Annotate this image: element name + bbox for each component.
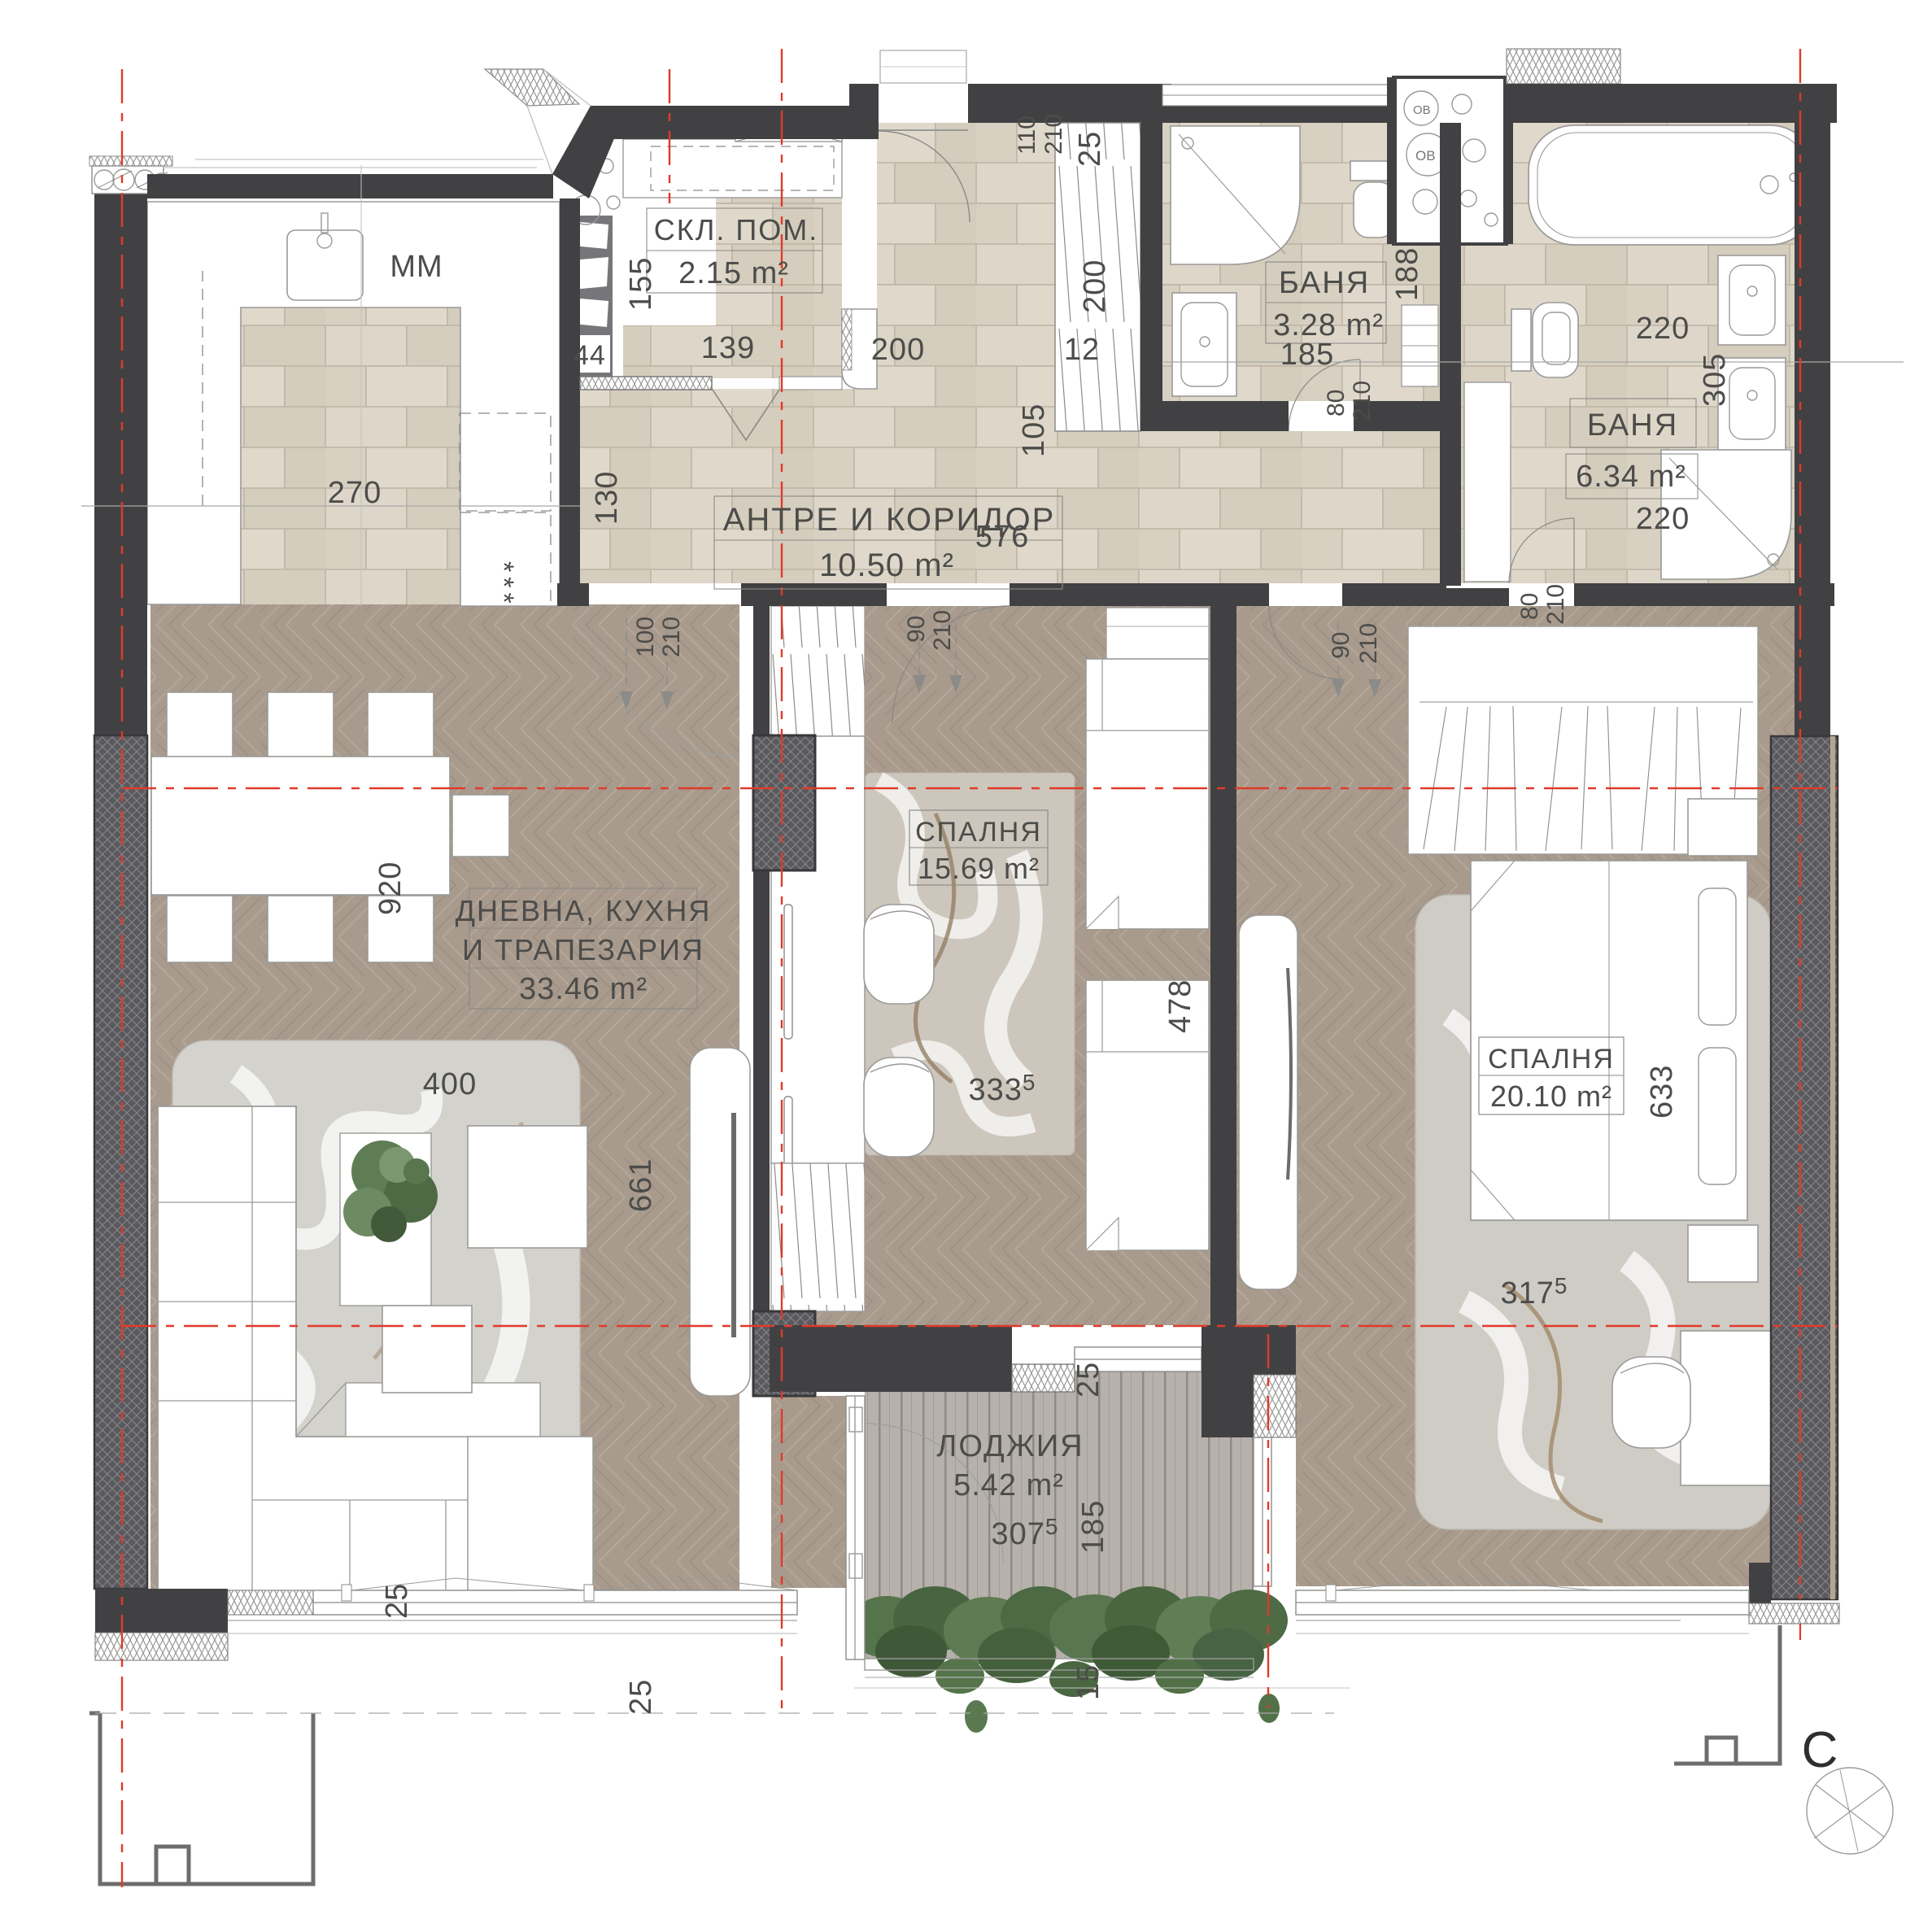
svg-text:2.15 m²: 2.15 m² bbox=[678, 256, 789, 290]
svg-text:220: 220 bbox=[1636, 502, 1690, 536]
svg-text:ДНЕВНА, КУХНЯ: ДНЕВНА, КУХНЯ bbox=[456, 894, 712, 927]
svg-text:25: 25 bbox=[624, 1679, 658, 1715]
svg-text:С: С bbox=[1802, 1722, 1838, 1778]
svg-text:210: 210 bbox=[929, 610, 956, 651]
svg-text:80: 80 bbox=[1516, 593, 1543, 620]
svg-text:210: 210 bbox=[1349, 381, 1376, 421]
svg-text:6.34 m²: 6.34 m² bbox=[1576, 460, 1686, 494]
svg-text:ЛОДЖИЯ: ЛОДЖИЯ bbox=[936, 1429, 1084, 1463]
svg-text:185: 185 bbox=[1280, 338, 1334, 372]
svg-text:БАНЯ: БАНЯ bbox=[1279, 266, 1370, 300]
svg-text:130: 130 bbox=[590, 471, 624, 525]
svg-text:210: 210 bbox=[1040, 114, 1067, 155]
svg-text:478: 478 bbox=[1163, 979, 1197, 1033]
svg-text:576: 576 bbox=[975, 520, 1029, 554]
svg-text:105: 105 bbox=[1017, 403, 1051, 457]
svg-text:188: 188 bbox=[1390, 247, 1424, 301]
svg-text:20.10 m²: 20.10 m² bbox=[1490, 1079, 1612, 1113]
svg-text:44: 44 bbox=[573, 340, 606, 371]
svg-text:139: 139 bbox=[701, 331, 755, 365]
svg-text:БАНЯ: БАНЯ bbox=[1587, 408, 1678, 443]
svg-text:90: 90 bbox=[903, 616, 930, 643]
svg-text:400: 400 bbox=[423, 1067, 477, 1101]
svg-text:200: 200 bbox=[1078, 259, 1112, 313]
svg-text:90: 90 bbox=[1328, 632, 1354, 659]
svg-text:920: 920 bbox=[373, 861, 408, 915]
svg-text:155: 155 bbox=[624, 257, 658, 311]
svg-text:ММ: ММ bbox=[390, 250, 443, 284]
svg-text:305: 305 bbox=[1698, 353, 1732, 407]
svg-text:200: 200 bbox=[871, 333, 925, 367]
svg-text:210: 210 bbox=[1542, 584, 1569, 625]
svg-text:5.42 m²: 5.42 m² bbox=[953, 1468, 1064, 1502]
svg-text:33.46 m²: 33.46 m² bbox=[519, 972, 648, 1006]
svg-text:110: 110 bbox=[1014, 116, 1040, 155]
svg-text:185: 185 bbox=[1076, 1500, 1110, 1554]
svg-text:100: 100 bbox=[632, 617, 659, 657]
svg-text:25: 25 bbox=[1073, 131, 1107, 167]
svg-text:270: 270 bbox=[328, 476, 382, 510]
svg-text:80: 80 bbox=[1323, 390, 1350, 416]
svg-text:10.50 m²: 10.50 m² bbox=[819, 547, 954, 583]
svg-text:ОВ: ОВ bbox=[1415, 148, 1436, 164]
svg-text:15.69 m²: 15.69 m² bbox=[918, 852, 1040, 885]
svg-text:220: 220 bbox=[1636, 312, 1690, 346]
svg-text:12: 12 bbox=[1064, 333, 1100, 367]
svg-text:210: 210 bbox=[658, 617, 685, 657]
svg-text:15: 15 bbox=[1071, 1664, 1106, 1700]
svg-text:СПАЛНЯ: СПАЛНЯ bbox=[1488, 1044, 1615, 1075]
svg-text:СПАЛНЯ: СПАЛНЯ bbox=[915, 817, 1042, 848]
svg-text:25: 25 bbox=[380, 1583, 414, 1619]
svg-text:633: 633 bbox=[1645, 1065, 1679, 1119]
svg-text:СКЛ. ПОМ.: СКЛ. ПОМ. bbox=[654, 213, 818, 246]
svg-text:***: *** bbox=[488, 561, 519, 608]
svg-text:И ТРАПЕЗАРИЯ: И ТРАПЕЗАРИЯ bbox=[462, 933, 704, 966]
svg-text:ОВ: ОВ bbox=[1413, 103, 1431, 117]
svg-text:661: 661 bbox=[624, 1158, 658, 1212]
svg-text:25: 25 bbox=[1071, 1362, 1106, 1398]
svg-text:210: 210 bbox=[1355, 623, 1382, 664]
